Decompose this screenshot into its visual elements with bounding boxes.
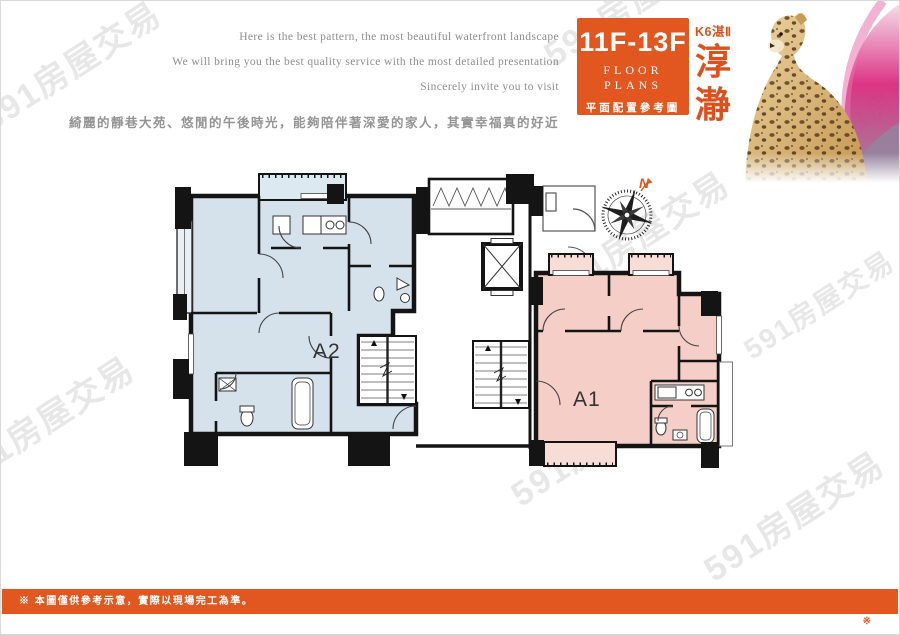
watermark: 591房屋交易 [0, 342, 143, 496]
header-slogans: Here is the best pattern, the most beaut… [69, 25, 559, 131]
project-name-char-1: 淳 [695, 42, 732, 83]
north-indicator: N [639, 175, 653, 191]
corner-reference-mark: ※ [863, 616, 871, 627]
a1-bottom-balcony [544, 442, 616, 466]
a1-kitchen [655, 385, 704, 400]
floor-plans-title-zh: 平面配置參考圖 [577, 100, 689, 115]
unit-a2-label: A2 [313, 340, 341, 363]
unit-a1: A1 [536, 254, 733, 466]
unit-a1-label: A1 [573, 388, 601, 411]
a2-kitchen [273, 216, 346, 234]
brochure-page: 591房屋交易 591房屋交易 591房屋交易 591房屋交易 591房屋交易 … [0, 0, 900, 635]
project-name: K6湛Ⅱ 淳 瀞 [695, 21, 732, 126]
svg-text:N: N [639, 175, 650, 191]
leopard-artwork [723, 1, 900, 183]
floor-plans-title-en: FLOOR PLANS [577, 63, 689, 93]
watermark: 591房屋交易 [735, 240, 900, 368]
utility-room [543, 186, 595, 231]
project-name-char-2: 瀞 [695, 85, 732, 126]
project-series-label: K6湛Ⅱ [695, 21, 732, 40]
disclaimer-text: ※ 本圖僅供參考示意，實際以現場完工為準。 [2, 589, 898, 614]
a1-side-balcony [720, 362, 733, 446]
stairwell-2 [473, 341, 529, 408]
slogan-line-1: Here is the best pattern, the most beaut… [69, 25, 559, 50]
slogan-line-2: We will bring you the best quality servi… [69, 50, 559, 75]
slogan-line-3: Sincerely invite you to visit [69, 75, 559, 100]
slogan-line-zh: 綺麗的靜巷大苑、悠閒的午後時光，能夠陪伴著深愛的家人，其實幸福真的好近 [69, 112, 559, 131]
vent-room [429, 179, 513, 234]
floor-range-label: 11F-13F [577, 27, 689, 58]
elevator [483, 239, 521, 296]
floor-badge: 11F-13F FLOOR PLANS 平面配置參考圖 [577, 18, 689, 115]
footer-bar: ※ 本圖僅供參考示意，實際以現場完工為準。 [2, 589, 898, 614]
stairwell-1 [359, 336, 416, 404]
compass-rose: N [597, 175, 665, 245]
